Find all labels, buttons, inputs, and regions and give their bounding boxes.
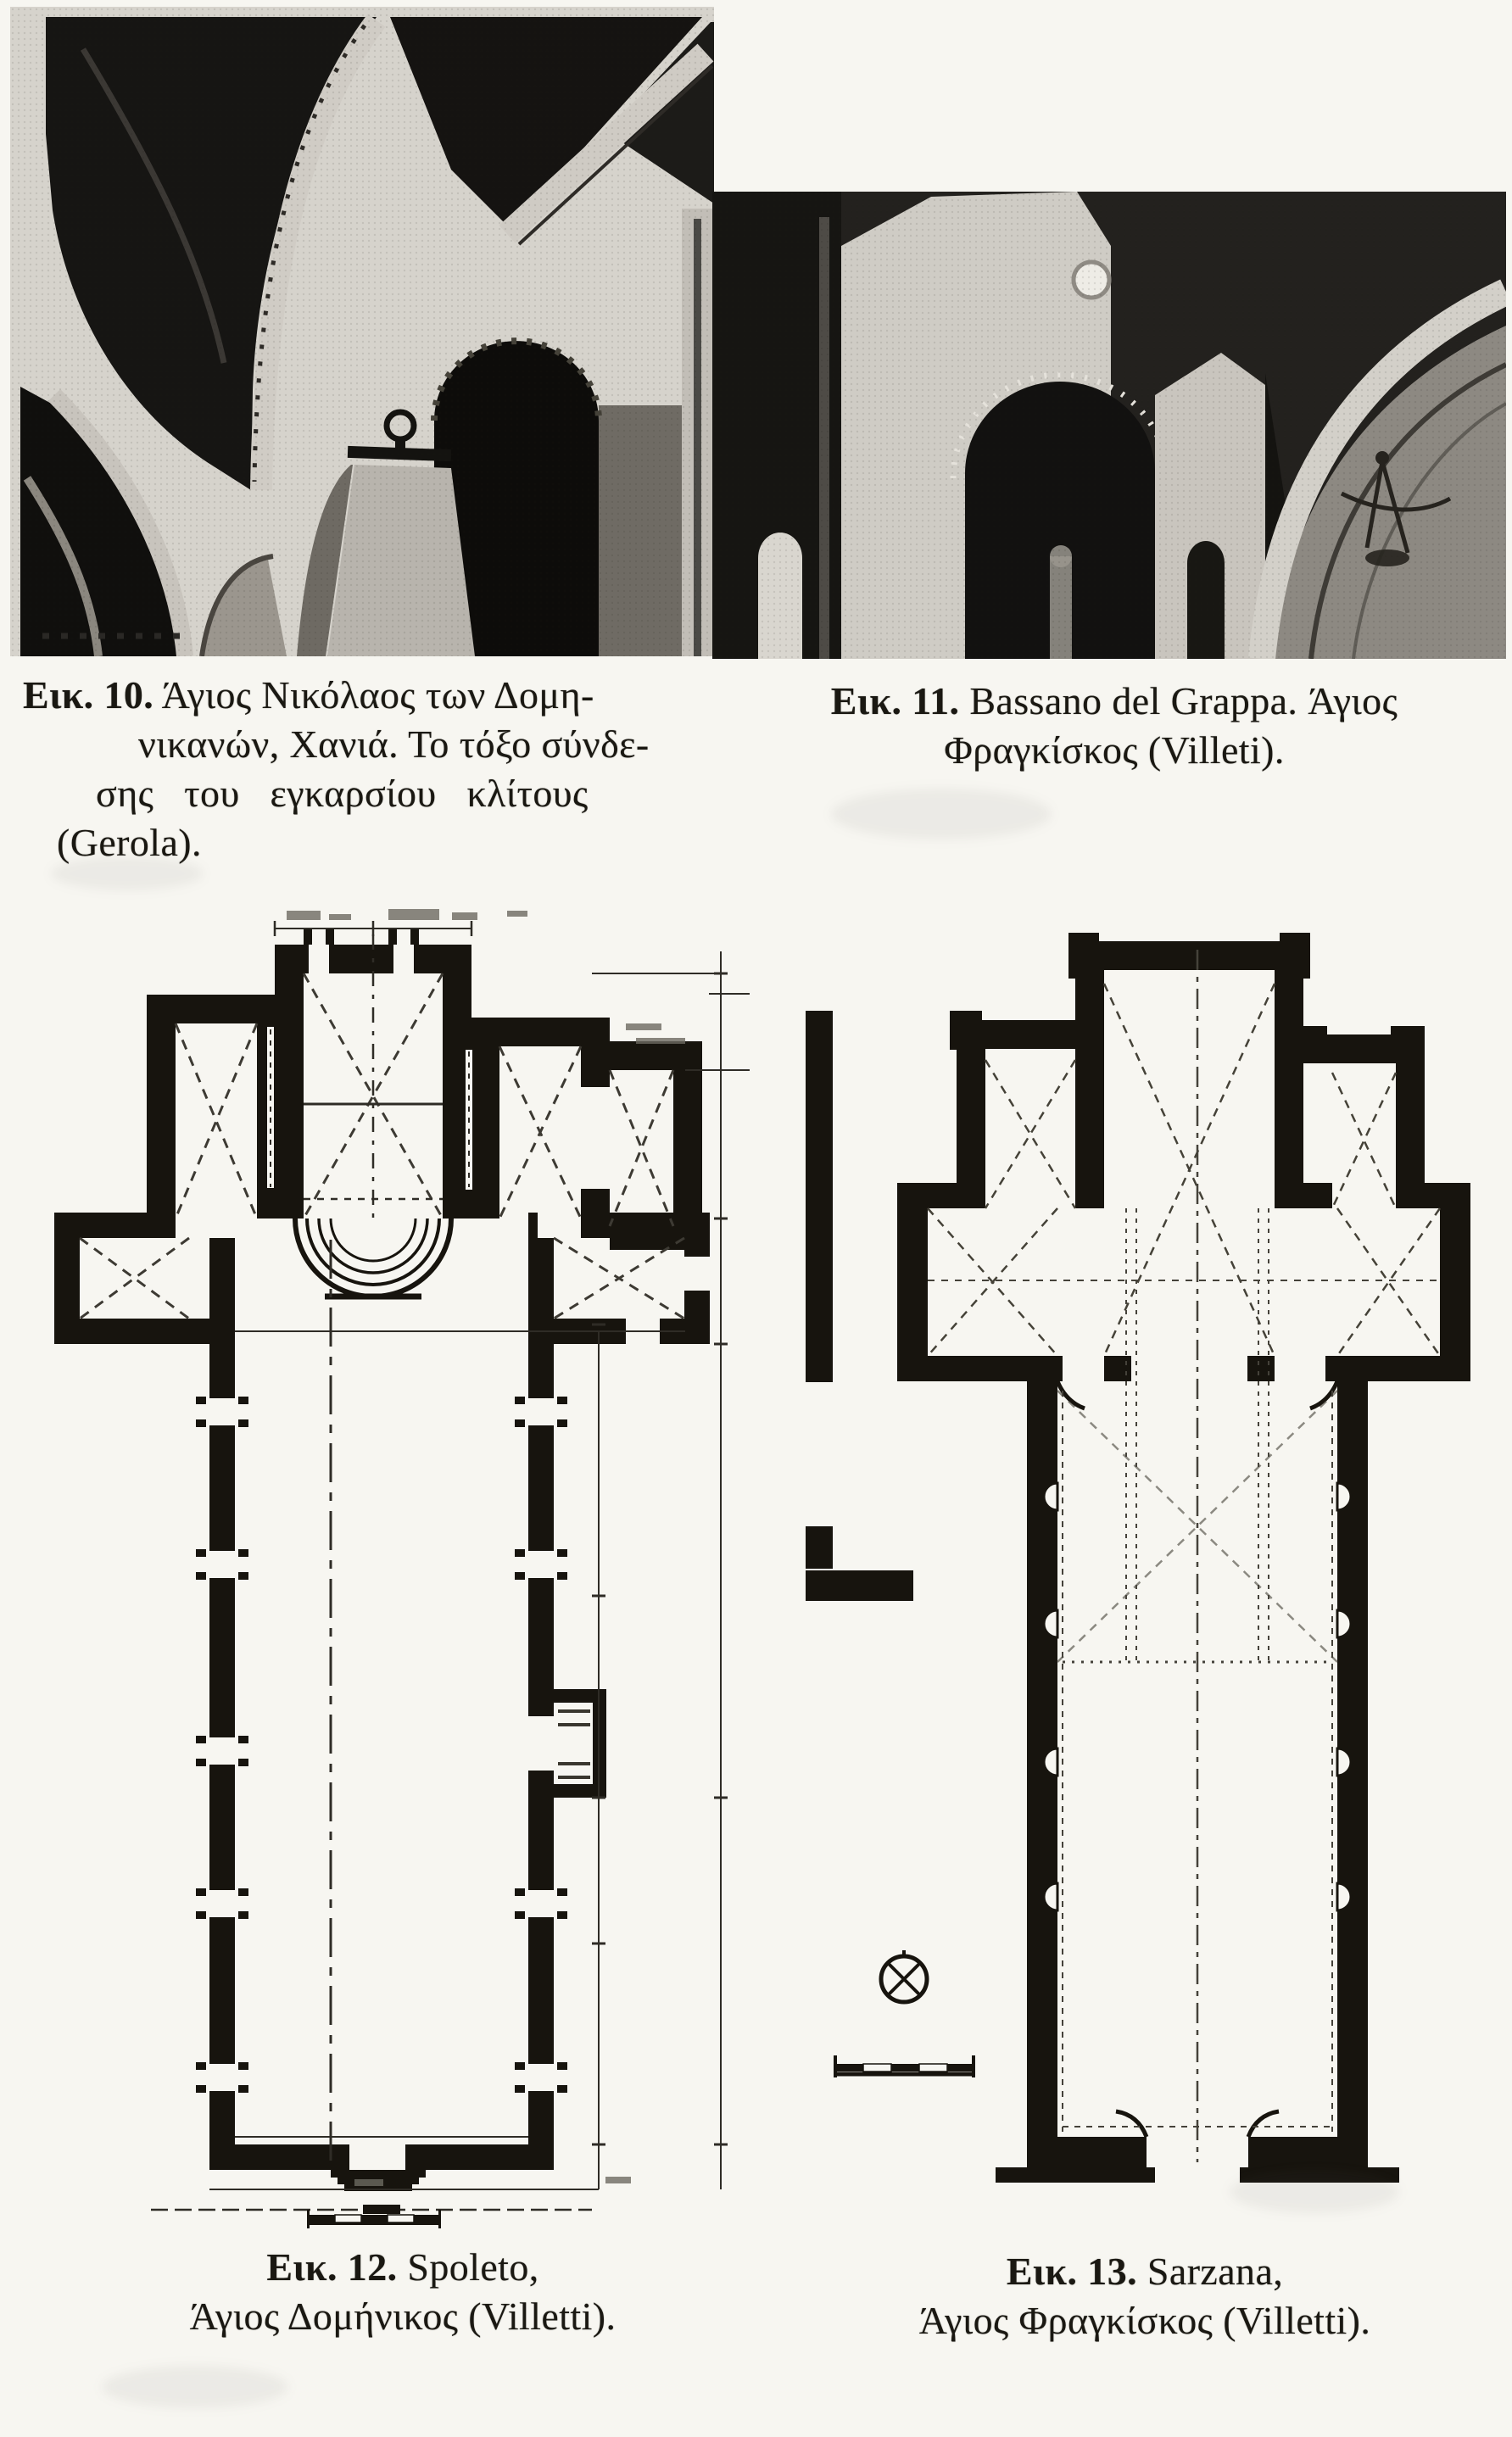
caption-line: Φραγκίσκος (Villeti). <box>723 726 1506 775</box>
figure-11-photo <box>712 192 1506 659</box>
caption-line: Εικ. 13. Sarzana, <box>806 2247 1484 2296</box>
figure-10-caption: Εικ. 10. Άγιος Νικόλαος των Δομη- νικανώ… <box>23 671 744 867</box>
nave-pilasters <box>196 1397 567 2093</box>
plan-walls <box>806 933 1470 2183</box>
scale-bar <box>834 2055 975 2077</box>
figure-12-floor-plan <box>32 901 758 2228</box>
figure-10-label: Εικ. 10. <box>23 673 153 717</box>
caption-text: Spoleto, <box>407 2245 538 2289</box>
caption-line: Εικ. 12. Spoleto, <box>59 2243 746 2292</box>
figure-13-label: Εικ. 13. <box>1007 2250 1137 2293</box>
floor-plan-sarzana-svg <box>797 933 1492 2188</box>
scan-smudge <box>51 856 204 890</box>
scanned-book-page: Εικ. 10. Άγιος Νικόλαος των Δομη- νικανώ… <box>0 0 1512 2437</box>
plan-openings <box>985 1183 1396 1381</box>
halftone-texture <box>712 192 1506 659</box>
figure-11-caption: Εικ. 11. Bassano del Grappa. Άγιος Φραγκ… <box>723 677 1506 775</box>
caption-line: Εικ. 11. Bassano del Grappa. Άγιος <box>723 677 1506 726</box>
figure-12-label: Εικ. 12. <box>266 2245 397 2289</box>
caption-line: Άγιος Φραγκίσκος (Villetti). <box>806 2296 1484 2345</box>
floor-plan-spoleto-svg <box>32 901 758 2228</box>
caption-text: Άγιος Νικόλαος των Δομη- <box>162 673 594 717</box>
caption-line: νικανών, Χανιά. Το τόξο σύνδε- <box>138 720 744 769</box>
vault-photo-halftone <box>10 7 714 656</box>
dimension-center-mark <box>363 2205 400 2214</box>
church-interior-photo-halftone <box>712 192 1506 659</box>
figure-13-floor-plan <box>797 933 1492 2188</box>
caption-text: Sarzana, <box>1147 2250 1283 2293</box>
caption-line: Άγιος Δομήνικος (Villetti). <box>59 2292 746 2341</box>
plan-walls <box>54 929 710 2191</box>
figure-12-caption: Εικ. 12. Spoleto, Άγιος Δομήνικος (Ville… <box>59 2243 746 2341</box>
figure-10-photo <box>10 7 714 656</box>
caption-text: Bassano del Grappa. Άγιος <box>969 679 1398 722</box>
scan-smudge <box>831 789 1052 839</box>
caption-line: Εικ. 10. Άγιος Νικόλαος των Δομη- <box>23 671 744 720</box>
figure-11-label: Εικ. 11. <box>831 679 960 722</box>
caption-line: σης του εγκαρσίου κλίτους <box>96 769 744 818</box>
figure-13-caption: Εικ. 13. Sarzana, Άγιος Φραγκίσκος (Vill… <box>806 2247 1484 2345</box>
scan-smudge <box>1230 2171 1399 2213</box>
compass-rose-icon <box>881 1950 927 2002</box>
halftone-texture <box>10 7 714 656</box>
scan-smudge <box>102 2366 288 2408</box>
apse-steps <box>295 1218 451 1297</box>
